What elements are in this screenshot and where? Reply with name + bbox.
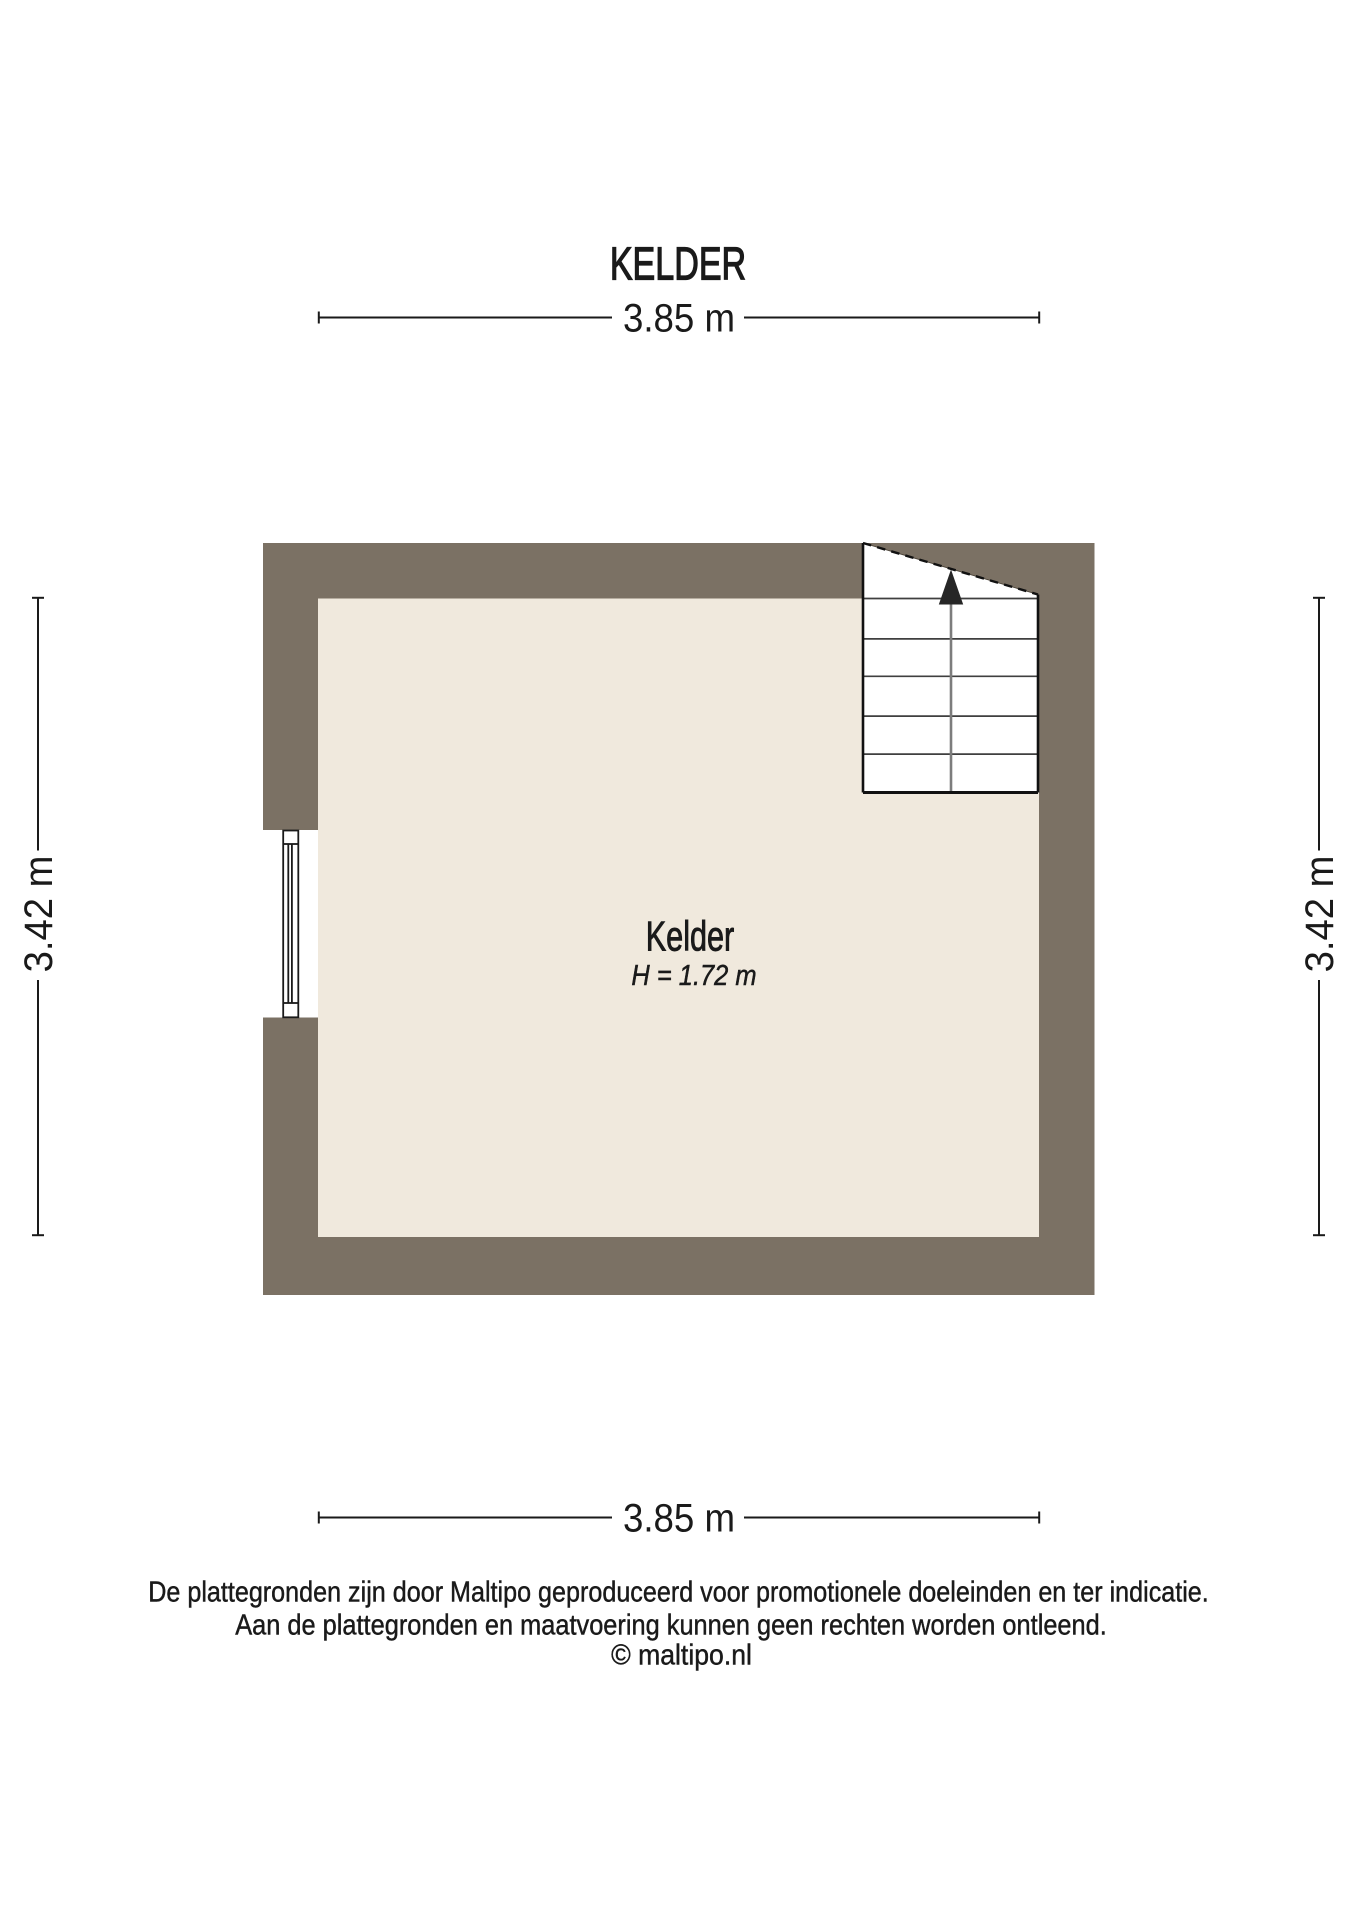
svg-text:H = 1.72 m: H = 1.72 m bbox=[631, 959, 756, 992]
svg-text:3.42 m: 3.42 m bbox=[17, 856, 61, 973]
svg-text:KELDER: KELDER bbox=[610, 237, 746, 289]
svg-text:© maltipo.nl: © maltipo.nl bbox=[611, 1639, 752, 1671]
svg-text:Kelder: Kelder bbox=[646, 913, 735, 960]
svg-text:3.42 m: 3.42 m bbox=[1298, 856, 1342, 973]
svg-text:Aan de plattegronden en maatvo: Aan de plattegronden en maatvoering kunn… bbox=[235, 1608, 1107, 1641]
svg-text:3.85 m: 3.85 m bbox=[623, 1496, 735, 1541]
svg-text:De plattegronden zijn door Mal: De plattegronden zijn door Maltipo gepro… bbox=[148, 1575, 1209, 1608]
svg-text:3.85 m: 3.85 m bbox=[623, 296, 735, 341]
